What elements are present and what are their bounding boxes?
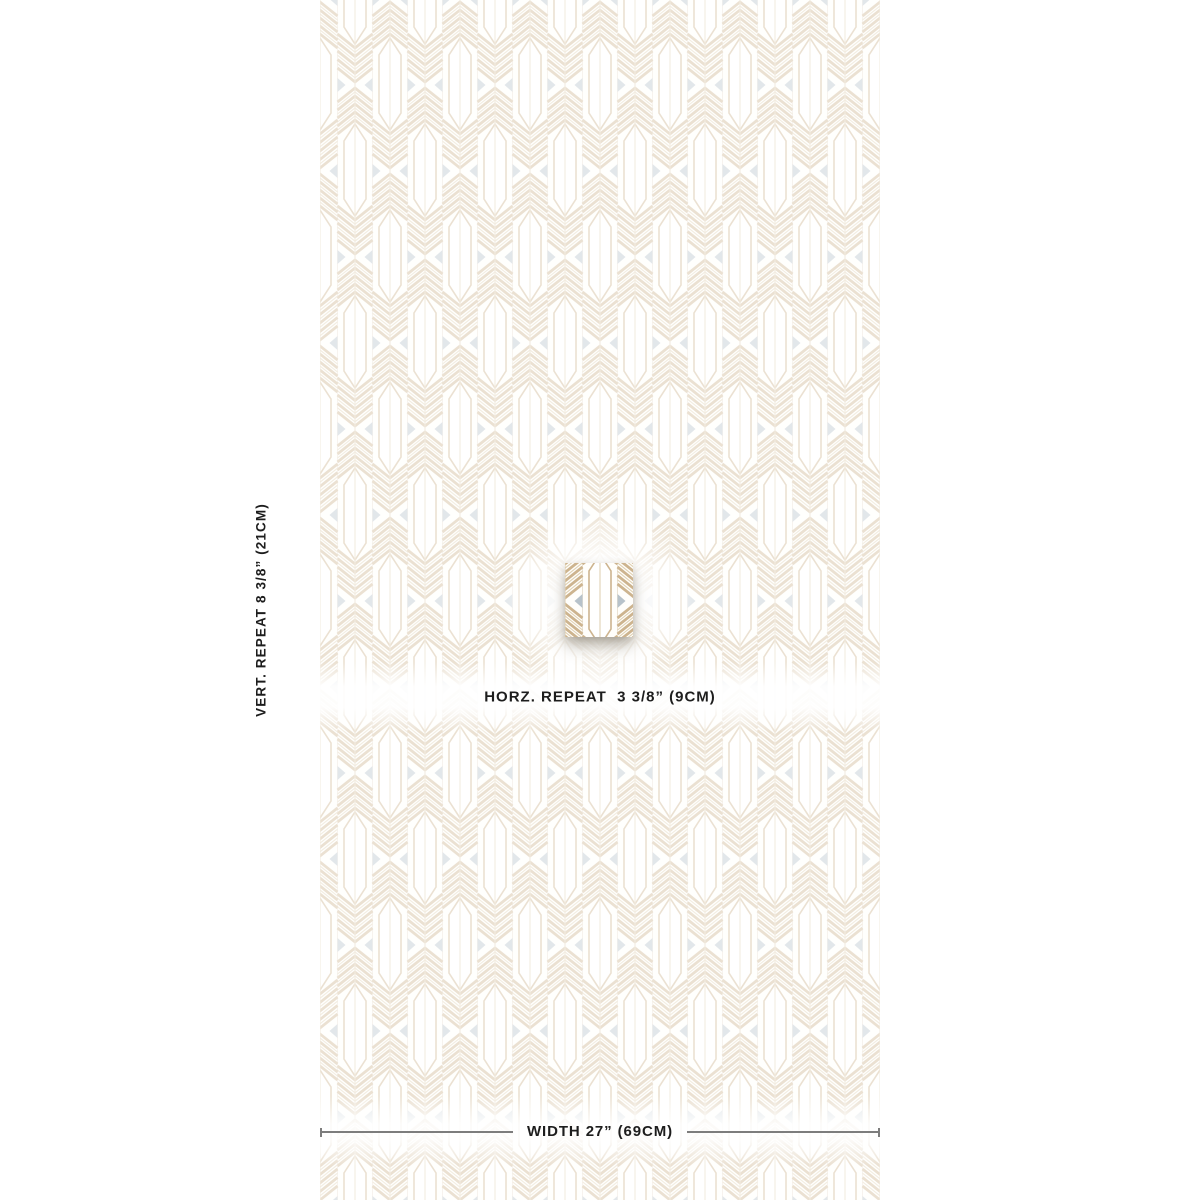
repeat-swatch-pattern <box>565 563 633 637</box>
repeat-swatch <box>565 563 633 637</box>
wallpaper-spec-page: VERT. REPEAT 8 3/8” (21CM) HORZ. REPEAT … <box>0 0 1200 1200</box>
width-measure: WIDTH 27” (69CM) <box>320 1122 880 1142</box>
vertical-repeat-label: VERT. REPEAT 8 3/8” (21CM) <box>254 503 269 717</box>
width-line-left <box>322 1131 513 1133</box>
width-label: WIDTH 27” (69CM) <box>513 1122 687 1142</box>
width-line-right <box>687 1131 878 1133</box>
width-tick-right <box>878 1128 880 1137</box>
horizontal-repeat-label: HORZ. REPEAT 3 3/8” (9CM) <box>484 689 716 706</box>
